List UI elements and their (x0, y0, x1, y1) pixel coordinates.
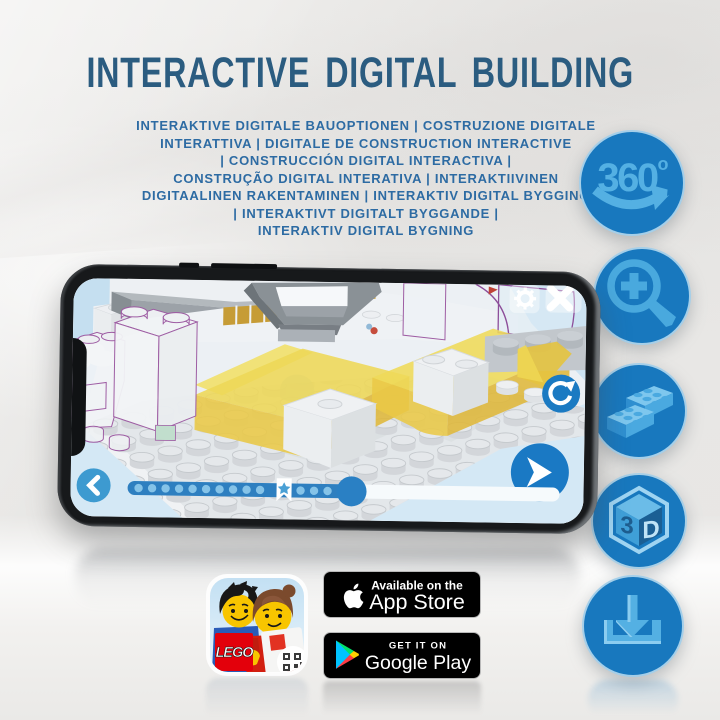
svg-text:GET IT ON: GET IT ON (389, 641, 447, 652)
svg-text:D: D (642, 515, 659, 544)
svg-text:o: o (658, 154, 669, 174)
svg-text:LEGO: LEGO (215, 645, 254, 661)
svg-text:App Store: App Store (369, 590, 465, 614)
svg-text:3: 3 (620, 511, 633, 540)
svg-text:Google Play: Google Play (365, 652, 471, 674)
